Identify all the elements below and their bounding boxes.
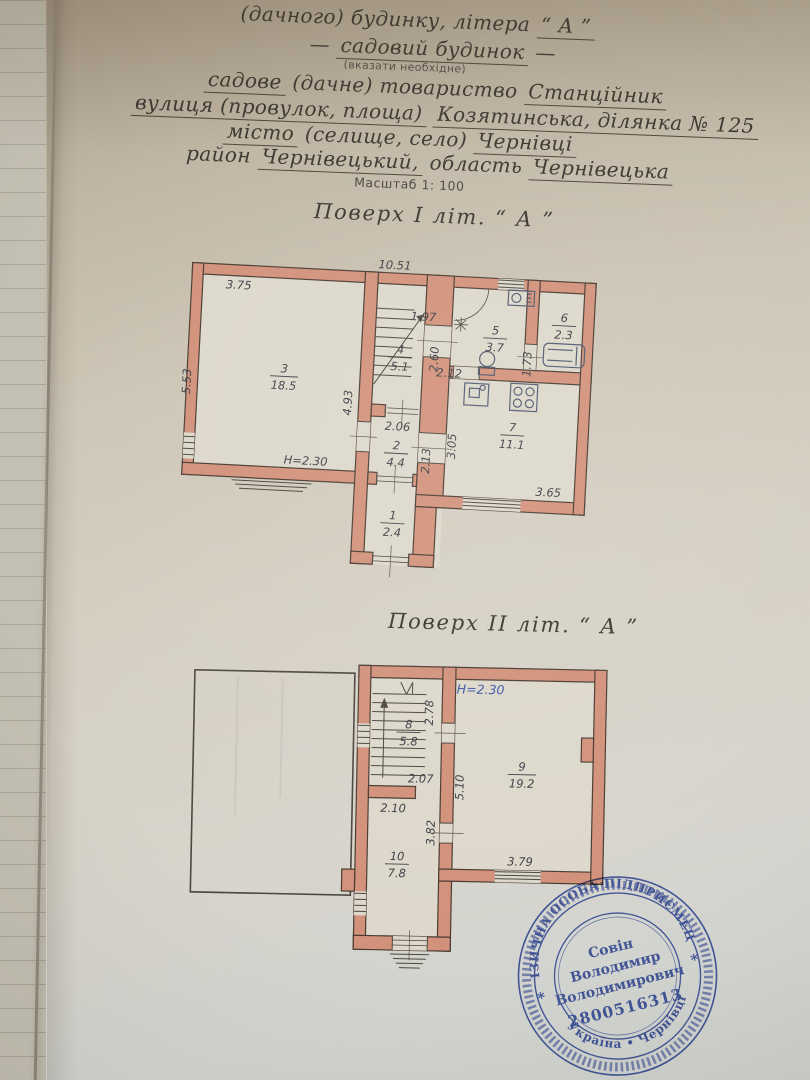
room5-number: 5 [492,323,500,337]
floor1-title: Поверх І літ. “ А ” [314,199,556,232]
oblast-value: Чернівецька [529,154,674,186]
dim-top-width: 10.51 [378,257,412,273]
dash-right: — [535,40,556,65]
district-label: район [186,141,252,167]
room1-number: 1 [389,508,397,522]
dim-206: 2.06 [384,419,410,434]
header-line-building: (дачного) будинку, літера “ А ” [240,1,596,41]
room4-area: 5.1 [390,359,409,374]
floor1-plan: 10.51 3.75 5.53 4.93 3 18.5 H=2.30 1.97 … [167,246,613,592]
stamp-star-left: * [536,988,548,1007]
room7-number: 7 [509,420,518,434]
floor1-height-note: H=2.30 [283,453,328,469]
dim-510: 5.10 [452,774,467,800]
dim-213: 2.13 [418,448,433,474]
dash-left: — [309,32,330,57]
dim-207: 2.07 [408,771,435,786]
room2-area: 4.4 [386,455,405,470]
room4-number: 4 [397,342,405,356]
room3-number: 3 [280,361,288,375]
dim-493: 4.93 [340,390,355,416]
photographed-document-page: (дачного) будинку, літера “ А ” — садови… [0,0,810,1080]
room6-number: 6 [560,311,568,325]
dim-365: 3.65 [535,485,561,500]
society-type-value: садове [204,67,287,96]
room10-number: 10 [390,849,405,863]
room8-number: 8 [405,717,413,731]
dim-553: 5.53 [179,368,194,394]
dim-210: 2.10 [380,801,406,816]
dim-375: 3.75 [226,277,252,292]
room2-number: 2 [392,438,400,452]
document-header: (дачного) будинку, літера “ А ” — садови… [0,0,810,260]
dim-379: 3.79 [507,854,533,869]
floor2-porch-steps [390,954,429,968]
dim-212: 2.12 [436,365,462,380]
dim-197: 1.97 [410,309,437,324]
dim-173: 1.73 [519,351,534,377]
building-letter-value: “ А ” [536,12,595,40]
dim-382: 3.82 [423,820,438,846]
room7-area: 11.1 [499,437,525,452]
building-label: (дачного) будинку, літера [240,1,531,36]
room9-number: 9 [518,760,526,774]
oblast-label: область [429,150,523,178]
terrace-bleed-lines [235,677,283,818]
room1-area: 2.4 [382,525,401,540]
floor2-height-note: H=2.30 [457,681,505,697]
dim-305: 3.05 [444,433,459,459]
room6-area: 2.3 [554,328,573,343]
room9-area: 19.2 [509,776,535,791]
dim-278: 2.78 [422,700,437,726]
room8-area: 5.8 [399,734,418,748]
floor2-title: Поверх ІІ літ. “ А ” [388,609,639,639]
district-value: Чернівецький, [257,144,423,176]
room5-area: 3.7 [485,340,505,355]
room10-area: 7.8 [387,866,406,880]
floor1-porch-steps [231,480,311,492]
scale-note: Масштаб 1: 100 [354,175,465,194]
room3-area: 18.5 [270,378,296,393]
roof-terrace-outline [190,670,355,895]
